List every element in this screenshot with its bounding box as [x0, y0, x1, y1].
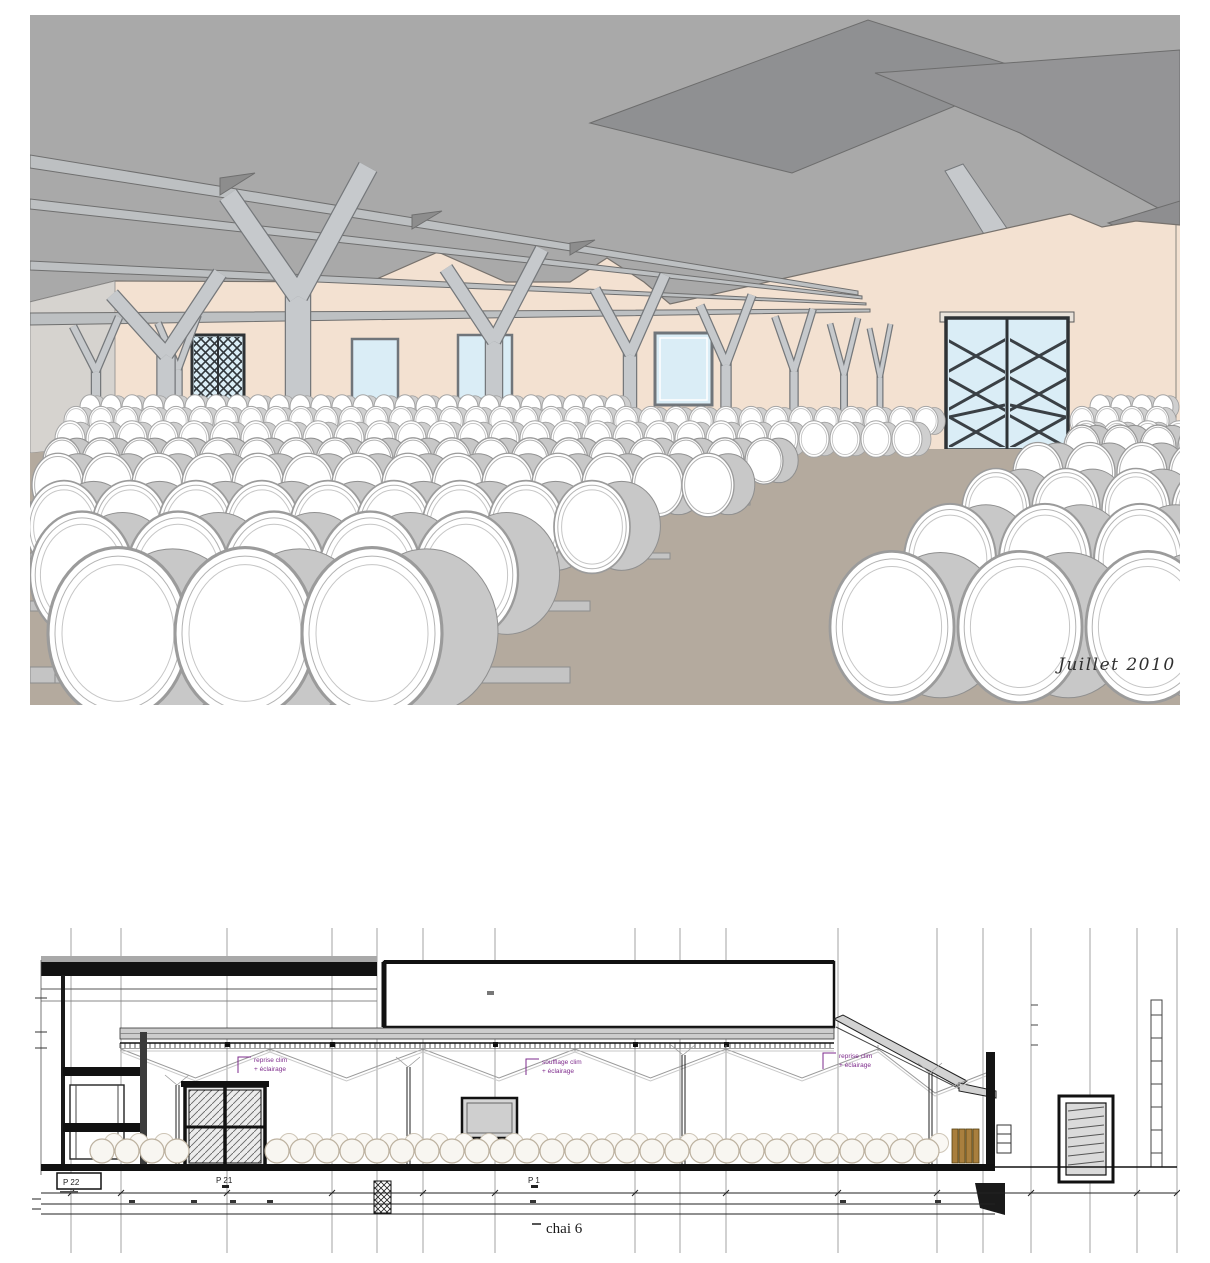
tiny-text-mark: [60, 1191, 78, 1193]
stacked-barrel: [959, 1129, 965, 1163]
barrel-face: [861, 421, 891, 458]
barrel-circle: [890, 1139, 914, 1163]
svg-text:reprise clim: reprise clim: [254, 1057, 287, 1064]
barrel-circle: [465, 1139, 489, 1163]
barrel-circle: [390, 1139, 414, 1163]
section-window: [462, 1098, 517, 1138]
pier-box-label: P 22: [63, 1178, 80, 1187]
barrel-circle: [490, 1139, 514, 1163]
barrel-circle: [690, 1139, 714, 1163]
purlin: [225, 1042, 230, 1047]
barrel-circle: [840, 1139, 864, 1163]
barrel-circle: [90, 1139, 114, 1163]
barrel-circle: [615, 1139, 639, 1163]
svg-text:+ éclairage: + éclairage: [254, 1066, 286, 1073]
section-title: chai 6: [546, 1221, 583, 1237]
dimension-value-mark: [840, 1200, 846, 1203]
post-arm: [671, 1045, 683, 1055]
double-door-right: [940, 312, 1074, 451]
annotation-1: reprise clim + éclairage: [238, 1057, 287, 1073]
stacked-barrel: [952, 1129, 958, 1163]
barrel-face: [892, 421, 922, 458]
barrel-circle: [540, 1139, 564, 1163]
stacked-barrels-brown: [952, 1129, 979, 1163]
pier-1-label: P 1: [528, 1176, 540, 1185]
barrel-circle: [565, 1139, 589, 1163]
barrel-circle: [765, 1139, 789, 1163]
purlin: [633, 1042, 638, 1047]
purlin: [330, 1042, 335, 1047]
dimension-value-mark: [230, 1200, 236, 1203]
barrel-face: [830, 551, 954, 702]
barrel-circle: [590, 1139, 614, 1163]
floor-slab: [41, 1164, 1177, 1171]
pier-labels: P 22 P 21 P 1: [57, 1173, 540, 1193]
upper-roof-band: [41, 956, 377, 1001]
rendering-3d-view: [30, 15, 1180, 705]
barrel-circle: [515, 1139, 539, 1163]
barrel-circle: [740, 1139, 764, 1163]
date-caption: Juillet 2010: [1058, 655, 1198, 675]
barrel-face: [554, 481, 630, 574]
svg-text:+ éclairage: + éclairage: [542, 1068, 574, 1075]
purlin: [493, 1042, 498, 1047]
barrel-circle: [365, 1139, 389, 1163]
hall-roof: [120, 1028, 834, 1049]
svg-text:reprise clim: reprise clim: [839, 1053, 872, 1060]
svg-text:+ éclairage: + éclairage: [839, 1062, 871, 1069]
tiny-dimension-mark: [487, 991, 494, 995]
stacked-barrel: [973, 1129, 979, 1163]
section-door-left: [181, 1081, 269, 1167]
tiny-text-mark: [532, 1223, 541, 1225]
dimension-value-mark: [530, 1200, 536, 1203]
tiny-text-mark: [531, 1185, 538, 1188]
barrel-circle: [665, 1139, 689, 1163]
pier-21-label: P 21: [216, 1176, 233, 1185]
dimension-value-mark: [191, 1200, 197, 1203]
barrel-circle: [290, 1139, 314, 1163]
barrel-circle: [640, 1139, 664, 1163]
barrel-circle: [315, 1139, 339, 1163]
barrel-circle: [415, 1139, 439, 1163]
barrel-circle: [715, 1139, 739, 1163]
barrel-circle: [340, 1139, 364, 1163]
barrel-circle: [115, 1139, 139, 1163]
barrel-circle: [815, 1139, 839, 1163]
post-arm: [408, 1057, 420, 1067]
barrel-circle: [790, 1139, 814, 1163]
dimension-lines: [32, 1193, 1177, 1214]
barrel-face: [958, 551, 1082, 702]
stacked-barrel: [966, 1129, 972, 1163]
purlin: [724, 1042, 729, 1047]
barrel-circle: [140, 1139, 164, 1163]
barrel-face: [799, 421, 829, 458]
right-hall-wall: [986, 1052, 995, 1168]
parapet-box: [384, 962, 834, 1027]
window-1: [352, 339, 398, 401]
annex-door: [1059, 1096, 1113, 1182]
dimension-value-mark: [935, 1200, 941, 1203]
dimension-ticks: [68, 1190, 1180, 1203]
right-wall-bracket: [997, 1125, 1011, 1153]
dimension-value-mark: [267, 1200, 273, 1203]
barrel-circle: [865, 1139, 889, 1163]
barrel-circle: [165, 1139, 189, 1163]
section-drawing: P 22 P 21 P 1 chai 6 reprise clim + écla…: [30, 915, 1180, 1263]
svg-text:soufflage clim: soufflage clim: [542, 1059, 582, 1066]
document-page: Juillet 2010: [0, 0, 1210, 1263]
post-arm: [165, 1075, 177, 1085]
foundations: [374, 1181, 1005, 1215]
barrel-circle: [440, 1139, 464, 1163]
barrel-face: [682, 453, 734, 516]
tiny-text-mark: [222, 1185, 229, 1188]
barrel-face: [830, 421, 860, 458]
window-3: [655, 333, 712, 405]
barrel-circle: [915, 1139, 939, 1163]
dimension-value-mark: [129, 1200, 135, 1203]
barrel-circle: [265, 1139, 289, 1163]
drawing-title: chai 6: [532, 1221, 583, 1237]
